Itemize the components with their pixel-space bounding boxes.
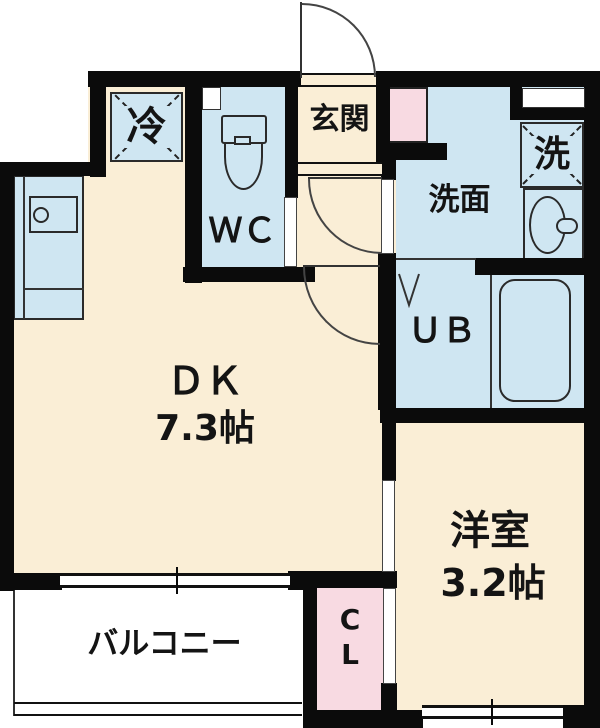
refrigerator-space-label: 冷 [125, 106, 169, 148]
room-label-unit-bath: ＵＢ [398, 314, 486, 350]
entrance-door-arc [302, 3, 376, 77]
wall-segment [522, 108, 585, 120]
wall-segment [380, 408, 600, 423]
washer-space-label: 洗 [532, 136, 572, 174]
room-label-dk: ＤＫ [135, 362, 275, 402]
room-label-western: 洋室 [420, 510, 560, 552]
room-label-balcony: バルコニー [52, 628, 277, 661]
refrigerator-space-icon: 冷 [110, 92, 183, 162]
shoe-cabinet [387, 87, 428, 143]
washer-space-icon: 洗 [520, 122, 584, 188]
western-room-sliding-door [382, 480, 395, 572]
wall-segment [381, 683, 397, 728]
wall-segment [0, 573, 62, 590]
closet-sliding-door [383, 588, 396, 684]
wall-segment [376, 71, 600, 87]
wall-segment [378, 253, 396, 410]
balcony-left-line [13, 590, 15, 716]
kitchen-counter-line [23, 176, 25, 319]
room-label-closet: CL [335, 602, 365, 672]
wall-segment [510, 85, 522, 120]
room-label-washroom: 洗面 [417, 184, 502, 217]
washroom-doorway [381, 179, 394, 254]
room-label-wc: ＷＣ [195, 214, 290, 250]
balcony-window [60, 573, 290, 588]
room-size-western: 3.2帖 [418, 564, 568, 604]
wall-segment [285, 85, 298, 198]
wall-segment [288, 573, 313, 590]
unit-bath-folding-door-icon [398, 272, 420, 308]
bathtub-icon [499, 279, 571, 402]
entrance-step [298, 162, 382, 176]
washroom-pipe-space [522, 88, 585, 108]
vanity-faucet-icon [556, 218, 578, 234]
room-size-dk: 7.3帖 [130, 410, 280, 448]
floorplan: 冷 洗 ＷＣ 玄関 洗面 [0, 0, 600, 728]
kitchen-divider-line [23, 288, 84, 290]
wall-segment [90, 71, 106, 177]
wall-segment [381, 160, 396, 180]
bathtub-edge-line [490, 274, 492, 408]
wall-segment [381, 143, 447, 160]
wall-segment [382, 423, 396, 481]
wall-segment [475, 258, 585, 275]
wc-pipe-space [202, 87, 221, 110]
wall-segment [183, 267, 315, 282]
balcony-bottom-line [14, 702, 302, 716]
toilet-tank-notch-icon [234, 136, 251, 145]
wall-segment [0, 162, 14, 591]
wall-segment [303, 573, 317, 728]
wall-segment [584, 71, 600, 728]
wall-segment [563, 705, 600, 728]
unit-bath-partition-line [396, 258, 476, 260]
wall-segment [185, 80, 202, 283]
kitchen-faucet-icon [33, 207, 49, 223]
window-tick [491, 699, 493, 725]
wall-segment [303, 710, 423, 728]
room-label-entrance: 玄関 [297, 104, 382, 136]
window-tick [176, 567, 178, 594]
